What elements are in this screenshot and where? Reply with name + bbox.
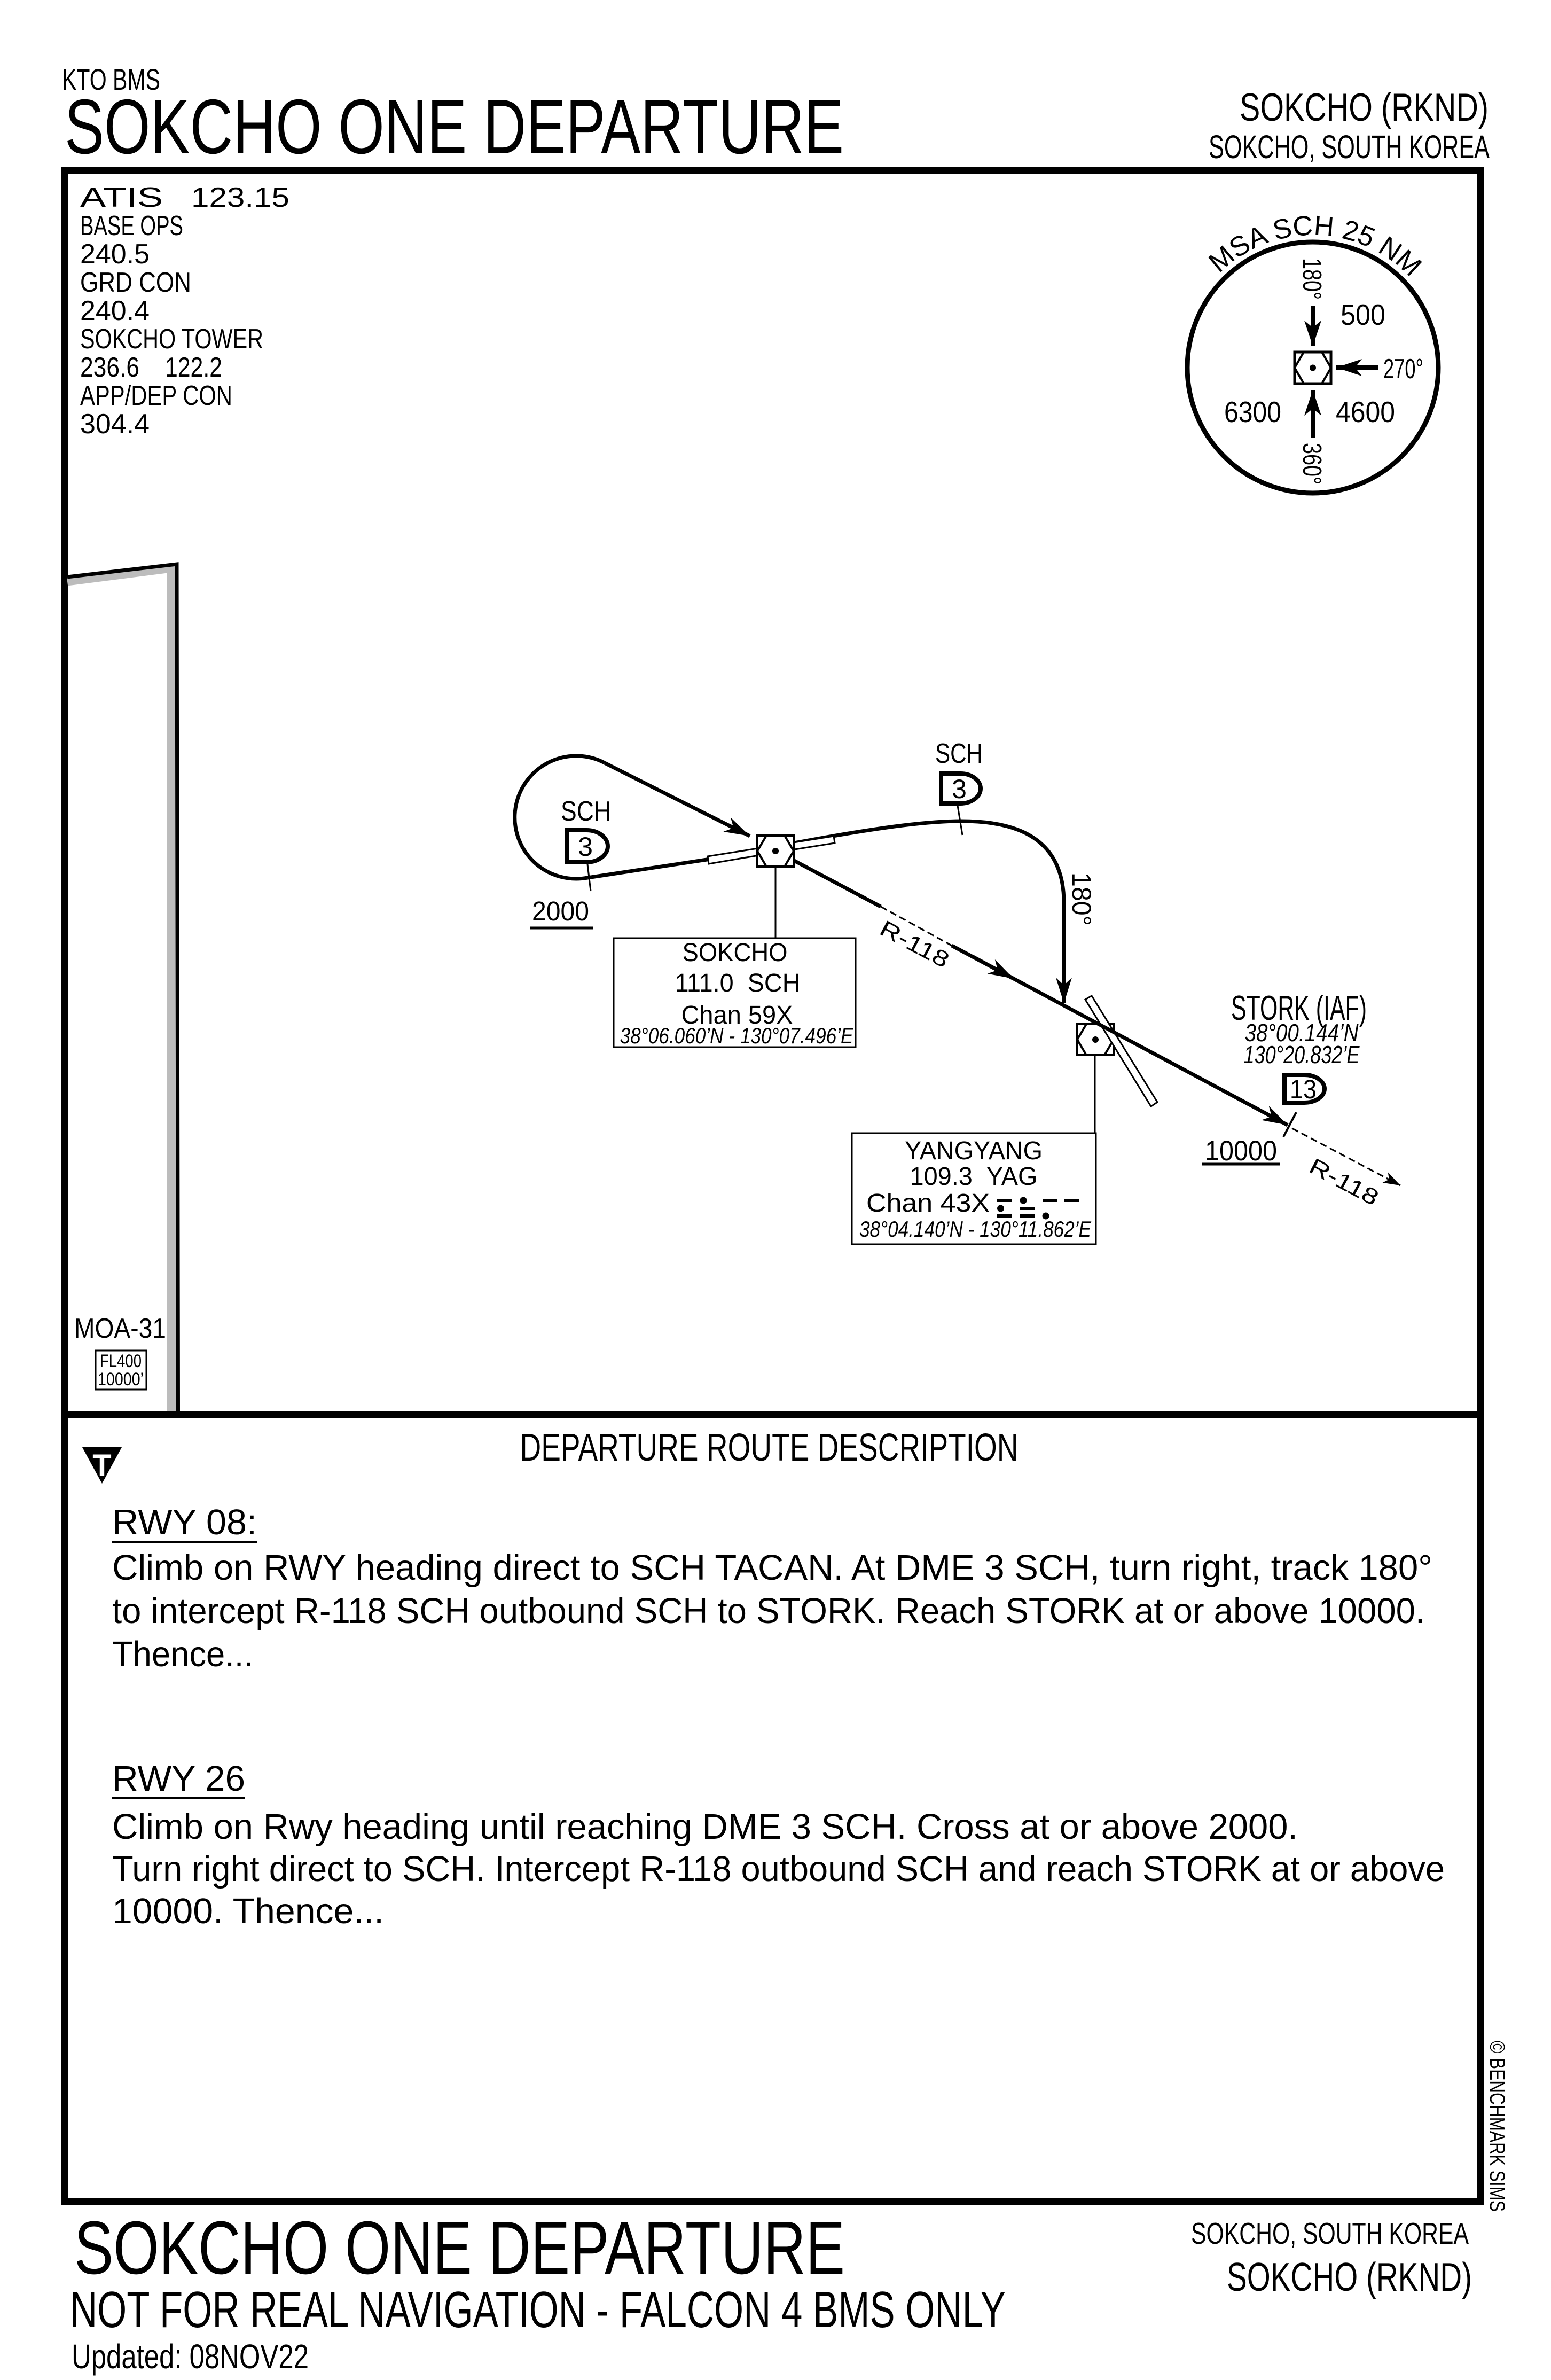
svg-text:SCH: SCH xyxy=(935,738,983,769)
svg-text:SOKCHO: SOKCHO xyxy=(683,939,788,967)
svg-text:SCH: SCH xyxy=(561,796,611,827)
svg-text:Climb on RWY heading direct to: Climb on RWY heading direct to SCH TACAN… xyxy=(112,1548,1432,1588)
svg-text:SOKCHO TOWER: SOKCHO TOWER xyxy=(80,324,263,355)
svg-text:180°: 180° xyxy=(1297,258,1326,300)
svg-text:304.4: 304.4 xyxy=(80,409,150,440)
svg-text:10000. Thence...: 10000. Thence... xyxy=(112,1891,384,1931)
svg-text:6300: 6300 xyxy=(1224,395,1281,428)
svg-text:360°: 360° xyxy=(1297,443,1326,485)
svg-text:SOKCHO, SOUTH KOREA: SOKCHO, SOUTH KOREA xyxy=(1209,129,1490,165)
svg-text:SOKCHO, SOUTH KOREA: SOKCHO, SOUTH KOREA xyxy=(1191,2217,1469,2251)
svg-text:10000: 10000 xyxy=(1205,1135,1277,1167)
svg-text:FL400: FL400 xyxy=(100,1351,142,1371)
svg-text:Climb on Rwy heading until rea: Climb on Rwy heading until reaching DME … xyxy=(112,1807,1298,1847)
svg-text:3: 3 xyxy=(952,774,967,804)
svg-text:270°: 270° xyxy=(1383,354,1423,385)
svg-text:3: 3 xyxy=(578,832,593,862)
svg-text:Thence...: Thence... xyxy=(112,1634,253,1674)
svg-text:NOT FOR REAL NAVIGATION - FALC: NOT FOR REAL NAVIGATION - FALCON 4 BMS O… xyxy=(70,2281,1006,2338)
svg-text:RWY 08:: RWY 08: xyxy=(112,1502,257,1542)
svg-text:YANGYANG: YANGYANG xyxy=(905,1137,1043,1165)
svg-text:109.3 YAG: 109.3 YAG xyxy=(910,1162,1038,1191)
svg-text:2000: 2000 xyxy=(532,896,589,926)
svg-text:APP/DEP CON: APP/DEP CON xyxy=(80,380,232,411)
svg-text:GRD CON: GRD CON xyxy=(80,267,191,298)
svg-text:240.4: 240.4 xyxy=(80,295,150,326)
svg-text:111.0 SCH: 111.0 SCH xyxy=(675,969,801,997)
svg-text:SOKCHO ONE DEPARTURE: SOKCHO ONE DEPARTURE xyxy=(65,83,844,170)
svg-text:Turn right direct to SCH. Inte: Turn right direct to SCH. Intercept R-11… xyxy=(112,1849,1445,1889)
svg-text:T: T xyxy=(92,1448,111,1483)
svg-text:Updated: 08NOV22: Updated: 08NOV22 xyxy=(72,2337,309,2376)
svg-text:38°06.060’N - 130°07.496’E: 38°06.060’N - 130°07.496’E xyxy=(620,1023,854,1048)
svg-text:10000’: 10000’ xyxy=(98,1369,144,1390)
svg-text:240.5: 240.5 xyxy=(80,239,150,270)
svg-text:130°20.832’E: 130°20.832’E xyxy=(1244,1041,1360,1068)
svg-text:SOKCHO (RKND): SOKCHO (RKND) xyxy=(1227,2254,1472,2299)
svg-text:RWY 26: RWY 26 xyxy=(112,1759,245,1799)
svg-text:13: 13 xyxy=(1290,1074,1317,1104)
svg-text:SOKCHO ONE DEPARTURE: SOKCHO ONE DEPARTURE xyxy=(74,2205,845,2290)
svg-text:38°04.140’N - 130°11.862’E: 38°04.140’N - 130°11.862’E xyxy=(859,1216,1092,1242)
svg-text:MOA-31: MOA-31 xyxy=(74,1313,166,1344)
svg-text:500: 500 xyxy=(1341,298,1385,331)
svg-text:SOKCHO (RKND): SOKCHO (RKND) xyxy=(1240,86,1489,129)
svg-text:DEPARTURE ROUTE DESCRIPTION: DEPARTURE ROUTE DESCRIPTION xyxy=(520,1426,1019,1469)
svg-text:180°: 180° xyxy=(1067,872,1096,926)
svg-text:Chan 43X: Chan 43X xyxy=(866,1189,990,1218)
svg-text:BASE OPS: BASE OPS xyxy=(80,210,183,241)
svg-text:4600: 4600 xyxy=(1336,395,1395,428)
svg-text:to intercept R-118 SCH outboun: to intercept R-118 SCH outbound SCH to S… xyxy=(112,1591,1425,1631)
svg-text:© BENCHMARK SIMS: © BENCHMARK SIMS xyxy=(1485,2041,1509,2212)
